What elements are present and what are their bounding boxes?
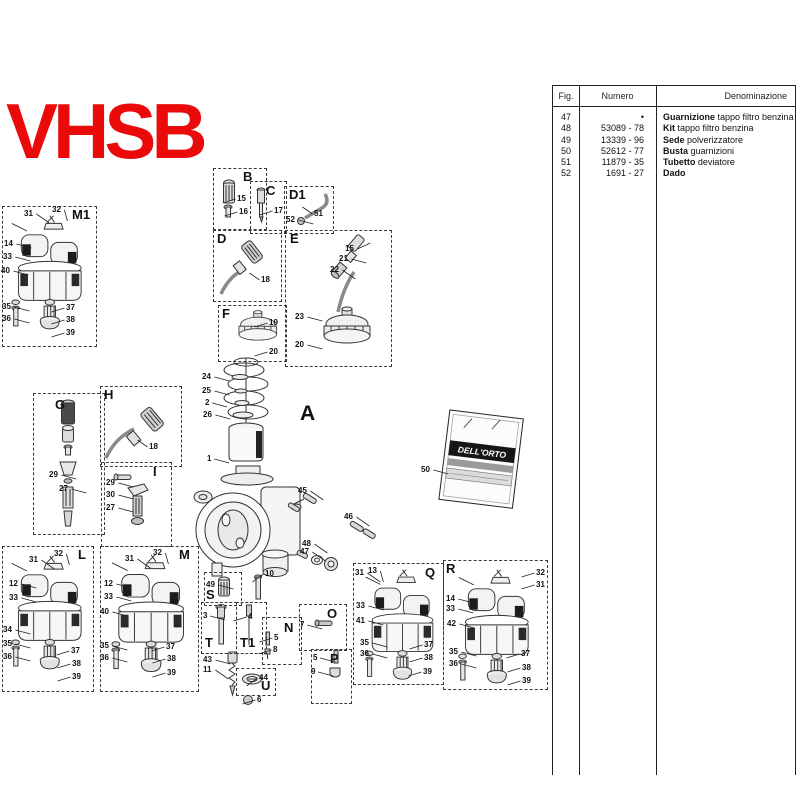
parts-table: Fig. Numero Denominazione 47•Guarnizione… (552, 85, 796, 775)
part-callout-32: 32 (52, 206, 61, 214)
part-callout-52: 52 (286, 216, 295, 224)
part-callout-20: 20 (295, 341, 304, 349)
part-callout-31: 31 (536, 581, 545, 589)
table-row: 5052612 - 77Busta guarnizioni (553, 146, 795, 157)
part-callout-8: 8 (273, 646, 277, 654)
part-callout-39: 39 (167, 669, 176, 677)
part-callout-14: 14 (4, 240, 13, 248)
part-callout-19: 19 (269, 319, 278, 327)
table-row: 4853089 - 78Kit tappo filtro benzina (553, 123, 795, 134)
cell-fig: 48 (553, 123, 579, 134)
part-callout-34: 34 (3, 626, 12, 634)
part-callout-1: 1 (207, 455, 211, 463)
part-callout-31: 31 (24, 210, 33, 218)
cell-denominazione: Busta guarnizioni (656, 146, 795, 157)
part-callout-9: 9 (311, 668, 315, 676)
part-callout-27: 27 (106, 504, 115, 512)
part-callout-38: 38 (522, 664, 531, 672)
cell-numero: • (579, 112, 656, 123)
part-callout-11: 11 (203, 666, 211, 674)
part-callout-31: 31 (125, 555, 134, 563)
cell-fig: 50 (553, 146, 579, 157)
part-callout-35: 35 (2, 303, 11, 311)
part-callout-38: 38 (72, 660, 81, 668)
part-callout-2: 2 (205, 399, 209, 407)
part-callout-50: 50 (421, 466, 430, 474)
part-callout-40: 40 (1, 267, 10, 275)
part-callout-49: 49 (206, 581, 215, 589)
part-callout-12: 12 (9, 580, 18, 588)
part-callout-36: 36 (449, 660, 458, 668)
table-row: 4913339 - 96Sede polverizzatore (553, 135, 795, 146)
part-callout-32: 32 (536, 569, 545, 577)
cell-numero: 11879 - 35 (579, 157, 656, 168)
cell-numero: 52612 - 77 (579, 146, 656, 157)
table-column-divider (656, 86, 657, 775)
part-callout-33: 33 (356, 602, 365, 610)
cell-numero: 13339 - 96 (579, 135, 656, 146)
part-callout-51: 51 (314, 210, 323, 218)
part-callout-39: 39 (72, 673, 81, 681)
cell-fig: 49 (553, 135, 579, 146)
section-label-a: A (300, 403, 315, 424)
part-callout-37: 37 (71, 647, 80, 655)
cell-denominazione: Dado (656, 168, 795, 179)
part-callout-31: 31 (29, 556, 38, 564)
part-callout-21: 21 (339, 255, 348, 263)
cell-fig: 52 (553, 168, 579, 179)
part-callout-32: 32 (54, 550, 63, 558)
part-callout-32: 32 (153, 549, 162, 557)
part-callout-43: 43 (203, 656, 212, 664)
diagram-canvas: DELL'ORTO M1BCD1DEFGHILMSTT1NOPUQR 31321… (0, 0, 800, 800)
table-row: 5111879 - 35Tubetto deviatore (553, 157, 795, 168)
col-header-numero: Numero (579, 91, 656, 101)
cell-denominazione: Tubetto deviatore (656, 157, 795, 168)
part-callout-37: 37 (521, 650, 530, 658)
part-callout-24: 24 (202, 373, 211, 381)
part-callout-29: 29 (49, 471, 58, 479)
part-callout-10: 10 (265, 570, 274, 578)
col-header-denominazione: Denominazione (656, 91, 795, 101)
part-callout-37: 37 (66, 304, 75, 312)
part-callout-33: 33 (3, 253, 12, 261)
part-callout-5: 5 (274, 634, 278, 642)
part-callout-42: 42 (447, 620, 456, 628)
part-callout-38: 38 (424, 654, 433, 662)
part-callout-13: 13 (368, 567, 377, 575)
part-callout-23: 23 (295, 313, 304, 321)
page-title: VHSB (6, 92, 203, 170)
part-callout-44: 44 (259, 674, 268, 682)
part-callout-38: 38 (66, 316, 75, 324)
cell-denominazione: Kit tappo filtro benzina (656, 123, 795, 134)
part-callout-46: 46 (344, 513, 353, 521)
part-callout-33: 33 (9, 594, 18, 602)
table-row: 521691 - 27Dado (553, 168, 795, 179)
part-callout-17: 17 (274, 207, 283, 215)
part-callout-39: 39 (522, 677, 531, 685)
part-callout-6: 6 (257, 696, 261, 704)
col-header-fig: Fig. (553, 91, 579, 101)
table-column-divider (579, 86, 580, 775)
part-callout-7: 7 (300, 621, 304, 629)
part-callout-36: 36 (2, 315, 11, 323)
part-callout-45: 45 (298, 487, 307, 495)
part-callout-5: 5 (313, 654, 317, 662)
cell-denominazione: Sede polverizzatore (656, 135, 795, 146)
part-callout-16: 16 (239, 208, 248, 216)
cell-denominazione: Guarnizione tappo filtro benzina (656, 112, 795, 123)
cell-numero: 53089 - 78 (579, 123, 656, 134)
part-callout-40: 40 (100, 608, 109, 616)
part-callout-38: 38 (167, 655, 176, 663)
part-callout-39: 39 (423, 668, 432, 676)
part-callout-37: 37 (424, 641, 433, 649)
part-callout-15: 15 (237, 195, 246, 203)
part-callout-36: 36 (3, 653, 12, 661)
part-callout-18: 18 (261, 276, 270, 284)
part-callout-36: 36 (360, 650, 369, 658)
part-callout-33: 33 (104, 593, 113, 601)
cell-fig: 51 (553, 157, 579, 168)
part-callout-35: 35 (360, 639, 369, 647)
part-callout-39: 39 (66, 329, 75, 337)
part-callout-27: 27 (59, 485, 68, 493)
part-callout-30: 30 (106, 491, 115, 499)
part-callout-4: 4 (248, 613, 252, 621)
part-callout-35: 35 (449, 648, 458, 656)
parts-table-header: Fig. Numero Denominazione (553, 86, 795, 107)
part-callout-35: 35 (3, 640, 12, 648)
part-callout-33: 33 (446, 605, 455, 613)
cell-numero: 1691 - 27 (579, 168, 656, 179)
part-callout-47: 47 (300, 548, 309, 556)
part-callout-25: 25 (202, 387, 211, 395)
part-callout-35: 35 (100, 642, 109, 650)
part-callout-15: 15 (345, 245, 354, 253)
part-callout-31: 31 (355, 569, 364, 577)
part-callout-12: 12 (104, 580, 113, 588)
part-callout-20: 20 (269, 348, 278, 356)
part-callout-14: 14 (446, 595, 455, 603)
cell-fig: 47 (553, 112, 579, 123)
part-callout-29: 29 (106, 479, 115, 487)
part-callout-36: 36 (100, 654, 109, 662)
part-callout-22: 22 (330, 266, 339, 274)
part-callout-18: 18 (149, 443, 158, 451)
part-callout-41: 41 (356, 617, 365, 625)
table-row: 47•Guarnizione tappo filtro benzina (553, 112, 795, 123)
part-callout-26: 26 (203, 411, 212, 419)
part-callout-3: 3 (203, 612, 207, 620)
part-callout-37: 37 (166, 643, 175, 651)
parts-table-body: 47•Guarnizione tappo filtro benzina48530… (553, 107, 795, 180)
